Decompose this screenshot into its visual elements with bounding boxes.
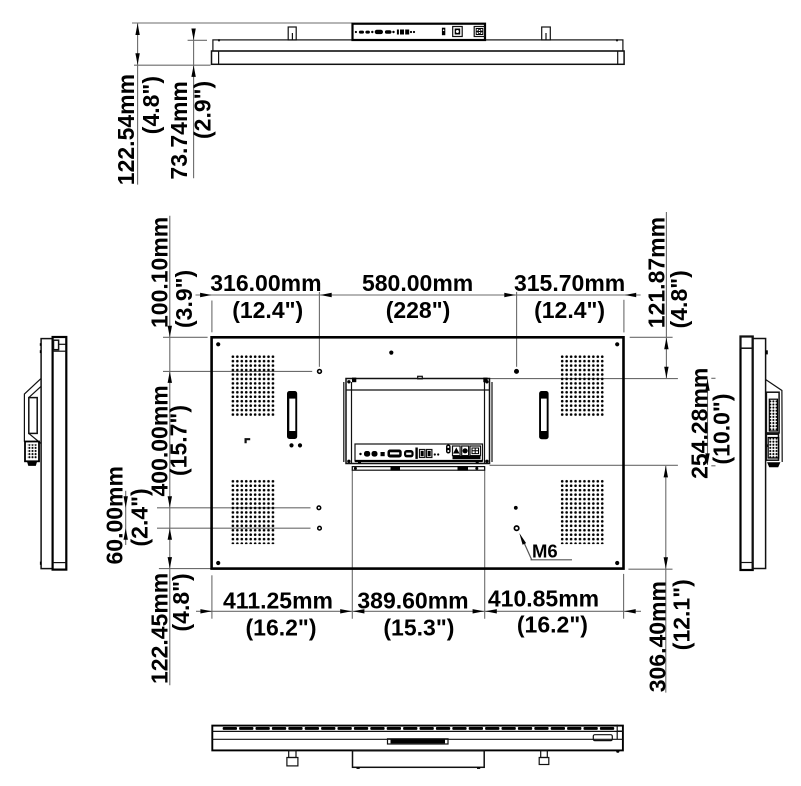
svg-text:389.60mm: 389.60mm bbox=[357, 587, 468, 613]
svg-text:(15.7"): (15.7") bbox=[166, 405, 192, 476]
svg-text:411.25mm: 411.25mm bbox=[223, 587, 333, 613]
svg-text:M6: M6 bbox=[532, 541, 558, 562]
svg-text:316.00mm: 316.00mm bbox=[210, 270, 321, 296]
svg-text:(16.2"): (16.2") bbox=[517, 611, 588, 637]
svg-text:(2.4"): (2.4") bbox=[126, 488, 152, 546]
svg-text:(12.1"): (12.1") bbox=[668, 579, 694, 650]
svg-text:122.54mm: 122.54mm bbox=[113, 74, 139, 185]
svg-text:(10.0"): (10.0") bbox=[708, 394, 734, 465]
svg-text:(228"): (228") bbox=[386, 297, 451, 323]
svg-text:(4.8"): (4.8") bbox=[138, 76, 164, 134]
svg-text:315.70mm: 315.70mm bbox=[514, 270, 625, 296]
svg-text:(12.4"): (12.4") bbox=[534, 297, 605, 323]
svg-text:(12.4"): (12.4") bbox=[232, 297, 303, 323]
svg-text:306.40mm: 306.40mm bbox=[644, 581, 670, 692]
svg-text:(3.9"): (3.9") bbox=[171, 270, 197, 328]
svg-text:410.85mm: 410.85mm bbox=[488, 585, 599, 611]
svg-text:(4.8"): (4.8") bbox=[168, 573, 194, 631]
svg-text:(4.8"): (4.8") bbox=[666, 270, 692, 328]
svg-text:100.10mm: 100.10mm bbox=[147, 217, 173, 328]
svg-text:(15.3"): (15.3") bbox=[383, 615, 454, 641]
svg-text:60.00mm: 60.00mm bbox=[102, 466, 128, 564]
svg-text:(2.9"): (2.9") bbox=[189, 81, 215, 139]
svg-text:(16.2"): (16.2") bbox=[246, 615, 317, 641]
svg-text:580.00mm: 580.00mm bbox=[362, 270, 473, 296]
svg-text:73.74mm: 73.74mm bbox=[166, 81, 192, 179]
